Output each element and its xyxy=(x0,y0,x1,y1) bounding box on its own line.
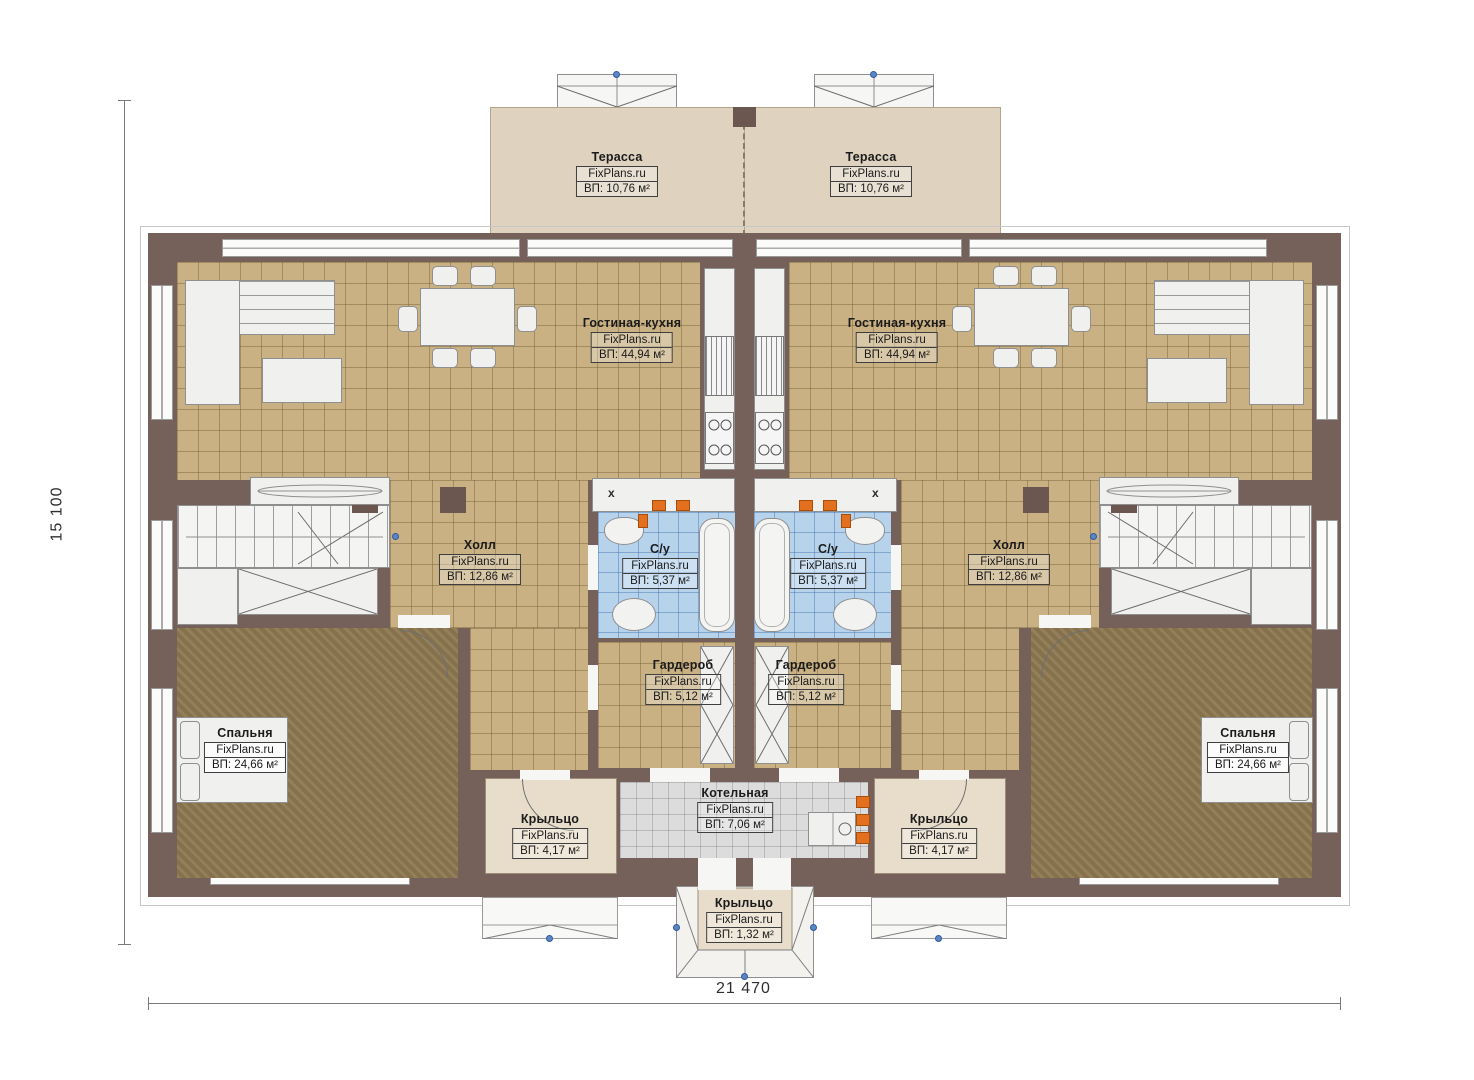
floor-plan-canvas: 15 100 21 470 xyxy=(0,0,1474,1080)
marker-dot xyxy=(392,533,399,540)
room-name: Холл xyxy=(968,538,1050,552)
terrace-steps-right xyxy=(814,74,934,108)
chair xyxy=(470,348,496,368)
window xyxy=(1316,285,1338,420)
dining-table-left xyxy=(420,288,515,346)
bathtub-right xyxy=(754,518,790,632)
brand-watermark: FixPlans.ru xyxy=(623,559,697,573)
kitchen-sink-right xyxy=(755,336,784,396)
marker-dot xyxy=(741,973,748,980)
room-label-porch-center: Крыльцо FixPlans.ruВП: 1,32 м² xyxy=(706,896,782,943)
chair xyxy=(517,306,537,332)
room-label-bath-left: С/у FixPlans.ruВП: 5,37 м² xyxy=(622,542,698,589)
brand-watermark: FixPlans.ru xyxy=(831,167,911,181)
kitchen-sink-left xyxy=(705,336,734,396)
appliance-x-mark: x xyxy=(872,486,879,500)
radiator xyxy=(638,514,648,528)
room-name: Крыльцо xyxy=(706,896,782,910)
room-label-hall-right: Холл FixPlans.ruВП: 12,86 м² xyxy=(968,538,1050,585)
brand-watermark: FixPlans.ru xyxy=(592,333,672,347)
room-label-wardrobe-right: Гардероб FixPlans.ruВП: 5,12 м² xyxy=(768,658,844,705)
toilet-right xyxy=(845,517,885,545)
chair xyxy=(1071,306,1091,332)
marker-dot xyxy=(810,924,817,931)
chair xyxy=(993,348,1019,368)
marker-dot xyxy=(673,924,680,931)
chair xyxy=(432,348,458,368)
dimension-line-horizontal xyxy=(148,1003,1341,1004)
closet-under-stairs-right xyxy=(1111,568,1251,615)
dining-table-right xyxy=(974,288,1069,346)
brand-watermark: FixPlans.ru xyxy=(969,555,1049,569)
room-area: ВП: 5,12 м² xyxy=(769,689,843,704)
marker-dot xyxy=(870,71,877,78)
terrace-divider-dashed xyxy=(743,114,745,236)
chair xyxy=(952,306,972,332)
radiator xyxy=(856,814,870,826)
room-area: ВП: 4,17 м² xyxy=(513,843,587,858)
door-opening xyxy=(1039,615,1091,628)
chair xyxy=(993,266,1019,286)
room-name: Гардероб xyxy=(768,658,844,672)
column-pad xyxy=(440,487,466,513)
door-opening xyxy=(779,768,839,782)
room-area: ВП: 10,76 м² xyxy=(577,181,657,196)
terrace-door-left xyxy=(527,239,733,257)
brand-watermark: FixPlans.ru xyxy=(902,829,976,843)
room-area: ВП: 7,06 м² xyxy=(698,817,772,832)
door-opening xyxy=(398,615,450,628)
coffee-table-left xyxy=(262,358,342,403)
room-area: ВП: 5,12 м² xyxy=(646,689,720,704)
room-area: ВП: 5,37 м² xyxy=(791,573,865,588)
terrace-steps-left xyxy=(557,74,677,108)
chair xyxy=(1031,348,1057,368)
brand-watermark: FixPlans.ru xyxy=(205,743,285,757)
room-name: Крыльцо xyxy=(901,812,977,826)
console-table-left xyxy=(250,477,390,505)
stove-right xyxy=(755,412,784,464)
radiator xyxy=(676,500,690,511)
room-area: ВП: 12,86 м² xyxy=(969,569,1049,584)
door-opening xyxy=(588,665,598,710)
room-area: ВП: 44,94 м² xyxy=(857,347,937,362)
room-area: ВП: 24,66 м² xyxy=(1208,757,1288,772)
brand-watermark: FixPlans.ru xyxy=(791,559,865,573)
room-label-bedroom-right: Спальня FixPlans.ruВП: 24,66 м² xyxy=(1207,726,1289,773)
sofa-chaise-right xyxy=(1249,280,1304,405)
room-area: ВП: 10,76 м² xyxy=(831,181,911,196)
marker-dot xyxy=(613,71,620,78)
room-name: Гостиная-кухня xyxy=(848,316,947,330)
brand-watermark: FixPlans.ru xyxy=(440,555,520,569)
chair xyxy=(432,266,458,286)
marker-dot xyxy=(546,935,553,942)
terrace-center-post xyxy=(733,107,756,127)
window xyxy=(1316,688,1338,833)
stair-landing-left xyxy=(177,568,238,625)
room-area: ВП: 5,37 м² xyxy=(623,573,697,588)
window xyxy=(151,285,173,420)
pillow xyxy=(1289,763,1309,801)
room-area: ВП: 12,86 м² xyxy=(440,569,520,584)
room-label-porch-right: Крыльцо FixPlans.ruВП: 4,17 м² xyxy=(901,812,977,859)
door-opening xyxy=(891,545,901,590)
brand-watermark: FixPlans.ru xyxy=(1208,743,1288,757)
dimension-width-label: 21 470 xyxy=(716,980,771,998)
closet-under-stairs-left xyxy=(238,568,378,615)
window xyxy=(151,520,173,630)
room-label-boiler: Котельная FixPlans.ruВП: 7,06 м² xyxy=(697,786,773,833)
room-name: Терасса xyxy=(576,150,658,164)
radiator xyxy=(799,500,813,511)
marker-dot xyxy=(1090,533,1097,540)
porch-steps-left xyxy=(482,897,618,939)
radiator xyxy=(856,832,870,844)
terrace-door-right xyxy=(756,239,962,257)
coffee-table-right xyxy=(1147,358,1227,403)
brand-watermark: FixPlans.ru xyxy=(857,333,937,347)
room-area: ВП: 4,17 м² xyxy=(902,843,976,858)
brand-watermark: FixPlans.ru xyxy=(707,913,781,927)
column-pad xyxy=(1023,487,1049,513)
radiator xyxy=(841,514,851,528)
radiator xyxy=(823,500,837,511)
dimension-tick xyxy=(148,997,149,1010)
washbasin-left xyxy=(612,598,656,631)
brand-watermark: FixPlans.ru xyxy=(577,167,657,181)
room-name: Холл xyxy=(439,538,521,552)
pillow xyxy=(1289,721,1309,759)
window xyxy=(969,239,1267,257)
bathtub-left xyxy=(699,518,735,632)
room-name: С/у xyxy=(790,542,866,556)
dimension-tick xyxy=(118,944,131,945)
room-label-bedroom-left: Спальня FixPlans.ruВП: 24,66 м² xyxy=(204,726,286,773)
dimension-line-vertical xyxy=(124,100,125,945)
door-opening xyxy=(650,768,710,782)
room-name: Спальня xyxy=(1207,726,1289,740)
staircase-left xyxy=(177,505,390,568)
dimension-tick xyxy=(118,100,131,101)
dimension-tick xyxy=(1340,997,1341,1010)
chair xyxy=(398,306,418,332)
stove-left xyxy=(705,412,734,464)
room-name: Гостиная-кухня xyxy=(583,316,682,330)
brand-watermark: FixPlans.ru xyxy=(513,829,587,843)
room-label-terrace-right: Терасса FixPlans.ruВП: 10,76 м² xyxy=(830,150,912,197)
room-name: Крыльцо xyxy=(512,812,588,826)
window xyxy=(222,239,520,257)
marker-dot xyxy=(935,935,942,942)
door-opening xyxy=(588,545,598,590)
room-name: Гардероб xyxy=(645,658,721,672)
room-name: Спальня xyxy=(204,726,286,740)
room-name: С/у xyxy=(622,542,698,556)
pillow xyxy=(180,721,200,759)
room-name: Котельная xyxy=(697,786,773,800)
window xyxy=(151,688,173,833)
room-label-terrace-left: Терасса FixPlans.ruВП: 10,76 м² xyxy=(576,150,658,197)
brand-watermark: FixPlans.ru xyxy=(698,803,772,817)
room-name: Терасса xyxy=(830,150,912,164)
hall-right-floor xyxy=(901,628,1019,770)
door-opening xyxy=(698,858,736,890)
staircase-right xyxy=(1099,505,1312,568)
hall-left-floor xyxy=(470,628,588,770)
appliance-x-mark: x xyxy=(608,486,615,500)
room-label-hall-left: Холл FixPlans.ruВП: 12,86 м² xyxy=(439,538,521,585)
room-label-wardrobe-left: Гардероб FixPlans.ruВП: 5,12 м² xyxy=(645,658,721,705)
pillow xyxy=(180,763,200,801)
brand-watermark: FixPlans.ru xyxy=(646,675,720,689)
washbasin-right xyxy=(833,598,877,631)
room-label-living-right: Гостиная-кухня FixPlans.ruВП: 44,94 м² xyxy=(848,316,947,363)
room-label-living-left: Гостиная-кухня FixPlans.ruВП: 44,94 м² xyxy=(583,316,682,363)
console-table-right xyxy=(1099,477,1239,505)
radiator xyxy=(856,796,870,808)
porch-steps-right xyxy=(871,897,1007,939)
chair xyxy=(1031,266,1057,286)
chair xyxy=(470,266,496,286)
brand-watermark: FixPlans.ru xyxy=(769,675,843,689)
radiator xyxy=(652,500,666,511)
room-label-porch-left: Крыльцо FixPlans.ruВП: 4,17 м² xyxy=(512,812,588,859)
room-area: ВП: 1,32 м² xyxy=(707,927,781,942)
stair-landing-right xyxy=(1251,568,1312,625)
dimension-height-label: 15 100 xyxy=(48,487,66,542)
room-area: ВП: 44,94 м² xyxy=(592,347,672,362)
window xyxy=(1316,520,1338,630)
sofa-chaise-left xyxy=(185,280,240,405)
door-opening xyxy=(891,665,901,710)
room-label-bath-right: С/у FixPlans.ruВП: 5,37 м² xyxy=(790,542,866,589)
door-opening xyxy=(753,858,791,890)
room-area: ВП: 24,66 м² xyxy=(205,757,285,772)
boiler-unit xyxy=(808,812,856,846)
